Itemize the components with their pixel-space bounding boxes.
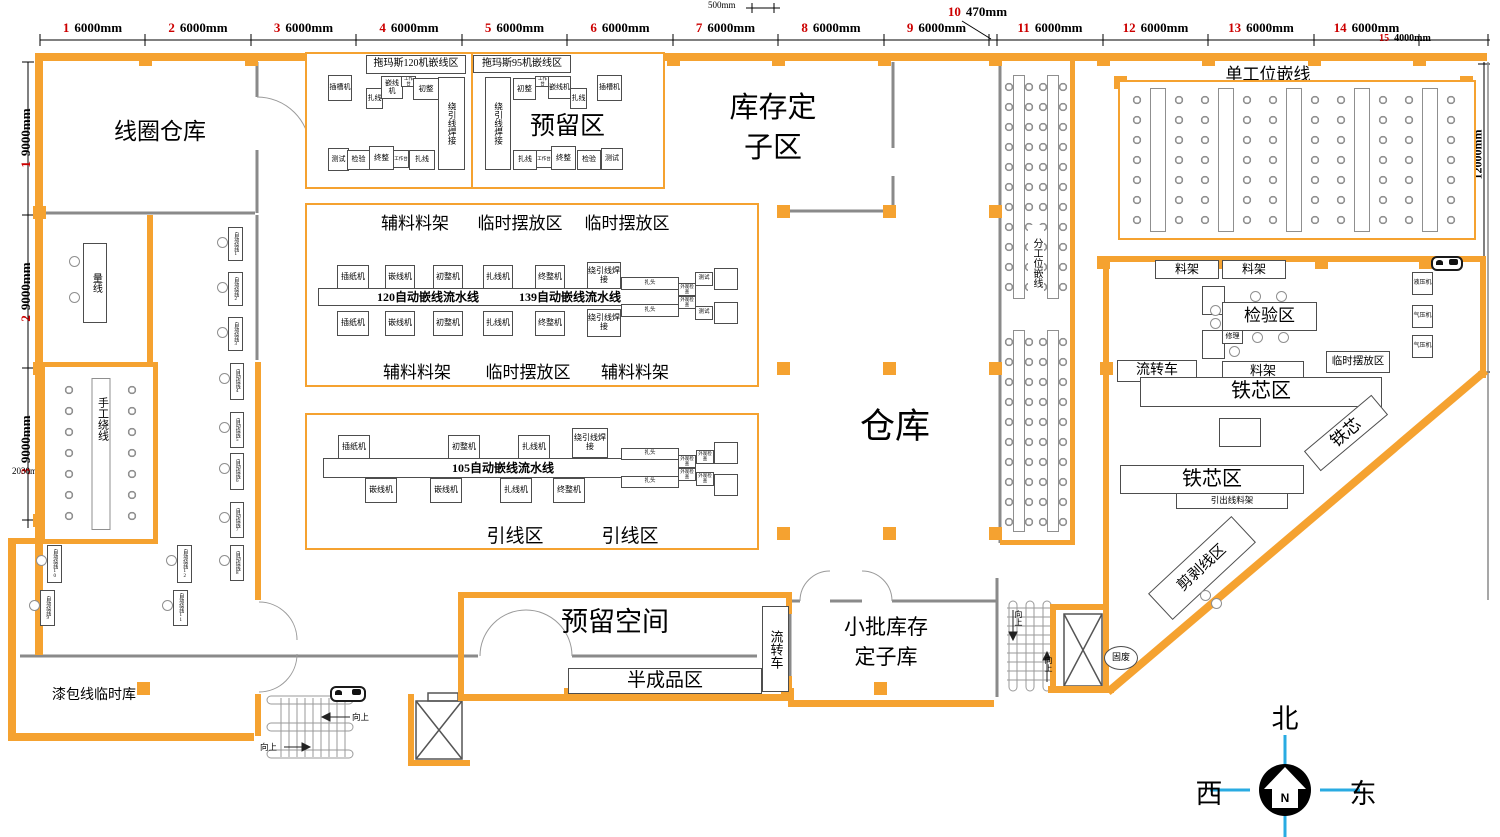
- single-station-desks: [1336, 88, 1388, 230]
- machine-visual-check: 外观检查: [678, 468, 696, 481]
- zone-stock-stator: 库存定子区: [723, 88, 823, 168]
- pillar: [1100, 362, 1113, 375]
- wall-elevator-left-a: [408, 694, 414, 766]
- machine: 插纸机: [338, 435, 370, 460]
- auto-winder-9: 自动绕线9: [40, 590, 55, 626]
- pillar: [883, 362, 896, 375]
- auto-winder-7: 自动绕线7: [230, 502, 244, 538]
- machine: 扎线机: [518, 435, 550, 460]
- auto-winder-12: 自动绕线12: [177, 545, 192, 583]
- ruler-bay-10: 10470mm: [930, 4, 1025, 20]
- machine-box: [714, 268, 738, 290]
- compass-east: 东: [1345, 772, 1381, 811]
- pillar: [777, 362, 790, 375]
- desk-table: [1422, 88, 1438, 232]
- stairs-left-arrows: [284, 713, 350, 751]
- chair-dot: [1252, 332, 1263, 343]
- machine-slot: 插槽机: [597, 75, 622, 101]
- machine: 嵌线机: [385, 265, 415, 290]
- pillar: [989, 527, 1002, 540]
- tuomasi120-title: 拖玛斯120机嵌线区: [366, 55, 466, 74]
- cart-icon: [330, 686, 366, 702]
- stairs-up-label: 向上: [352, 711, 369, 723]
- chair-dot: [1250, 291, 1261, 302]
- iron-core-area: 铁芯区: [1120, 465, 1304, 494]
- belt-label-120: 120自动嵌线流水线: [377, 291, 479, 304]
- chair-dot: [1229, 346, 1240, 357]
- wall-elev2-left: [1050, 604, 1056, 692]
- manual-winding-desks: 手工绕线: [64, 378, 138, 528]
- outgoing-wire-rack: 引出线料架: [1176, 493, 1288, 509]
- compass-n-letter: N: [1279, 791, 1291, 805]
- machine-box: [714, 474, 738, 496]
- strip-label: 引线区: [480, 521, 550, 548]
- wall-right-area-right: [1480, 256, 1486, 378]
- wall-right-area-left: [1103, 256, 1109, 690]
- auto-winder-11: 自动绕线11: [173, 590, 188, 626]
- machine-insert: 嵌线机: [381, 76, 403, 99]
- repair-box: 修理: [1222, 330, 1243, 344]
- machine: 终整机: [553, 478, 585, 503]
- pillar: [878, 53, 891, 66]
- single-station-desks: [1132, 88, 1184, 230]
- wall-reserved-top: [458, 592, 792, 598]
- auto-winder-4: 自动绕线4: [230, 363, 244, 400]
- machine-test: 测试: [328, 148, 349, 171]
- strip-label: 临时摆放区: [577, 209, 677, 234]
- machine-weld: 绕引线焊接: [587, 262, 621, 290]
- auto-winder-8: 自动绕线8: [230, 545, 244, 581]
- desk-table: [1150, 88, 1166, 232]
- desk-table: [1047, 330, 1059, 532]
- pillar: [989, 53, 1002, 66]
- chair-dot: [219, 512, 230, 523]
- machine: 插纸机: [337, 311, 369, 336]
- chair-dot: [69, 292, 80, 303]
- conveyor-belt: 105自动嵌线流水线: [323, 458, 683, 478]
- compass-north: 北: [1267, 697, 1303, 736]
- zone-reserved-area: 预留区: [525, 106, 610, 142]
- machine: 初整机: [448, 435, 480, 460]
- ruler-bay-15: 154000mm: [1360, 33, 1450, 44]
- machine-insert: 嵌线机: [548, 76, 571, 99]
- desk-table: 手工绕线: [92, 378, 111, 530]
- pillar: [245, 53, 258, 66]
- desk-table: [1218, 88, 1234, 232]
- factory-floor-plan: 16000mm 26000mm 36000mm 46000mm 56000mm …: [0, 0, 1500, 837]
- machine: 嵌线机: [365, 478, 397, 503]
- machine-tie: 扎线: [513, 150, 537, 170]
- machine-clamp: 扎头: [621, 304, 679, 317]
- pillar: [1315, 256, 1328, 269]
- chair-dot: [217, 282, 228, 293]
- wall-smallbatch-bottom: [788, 700, 994, 707]
- pillar: [874, 682, 887, 695]
- zone-enamel-temp: 漆包线临时库: [46, 684, 142, 704]
- elevator-left: [416, 693, 462, 759]
- chair-dot: [166, 555, 177, 566]
- rack: 料架: [1155, 260, 1219, 279]
- ruler-bay-5: 56000mm: [462, 20, 567, 36]
- machine-tie: 扎线: [409, 150, 435, 170]
- strip-label: 引线区: [595, 521, 665, 548]
- auto-winder-1: 自动绕线1: [228, 227, 243, 261]
- ruler-left-2: 29000mm: [18, 252, 34, 332]
- ruler-bay-12: 126000mm: [1103, 20, 1208, 36]
- measure-wire-desk: 量线: [83, 243, 107, 323]
- desk-table: [1047, 75, 1059, 299]
- ruler-left-1: 19000mm: [18, 98, 34, 178]
- chair-dot: [1210, 318, 1221, 329]
- machine: 初整机: [433, 311, 463, 336]
- chair-dot: [217, 237, 228, 248]
- chair-dot: [219, 373, 230, 384]
- wall-reserved-bottom: [458, 694, 792, 701]
- strip-label: 辅料料架: [590, 358, 680, 383]
- ruler-bay-8: 86000mm: [778, 20, 884, 36]
- machine-weld: 绕引线焊接: [572, 428, 608, 458]
- chair-dot: [217, 327, 228, 338]
- single-station-desks: [1404, 88, 1456, 230]
- inspection-area: 检验区: [1222, 302, 1317, 331]
- wall-left-step: [8, 538, 41, 544]
- ruler-mini-dim: 500mm: [708, 0, 736, 10]
- semi-finished-area: 半成品区: [568, 668, 762, 694]
- machine: 嵌线机: [430, 478, 462, 503]
- chair-dot: [1211, 598, 1222, 609]
- stairs-up-label: 向上: [260, 741, 277, 753]
- desk-table: [1013, 330, 1025, 532]
- pillar: [667, 53, 680, 66]
- machine-slot: 插槽机: [328, 75, 352, 101]
- stairs-left: [267, 696, 353, 758]
- split-station-desks: [1038, 330, 1068, 530]
- machine: 插纸机: [337, 265, 369, 290]
- pneumatic-press: 气压机: [1412, 335, 1433, 358]
- iron-core-area: 铁芯区: [1140, 377, 1382, 407]
- transfer-cart-vertical: 流转车: [762, 606, 789, 692]
- machine-pre: 初整: [513, 78, 536, 100]
- ruler-bay-7: 76000mm: [673, 20, 778, 36]
- pillar: [139, 53, 152, 66]
- machine: 初整机: [433, 265, 463, 290]
- machine-check: 检验: [347, 150, 370, 170]
- pillar: [777, 205, 790, 218]
- machine-test: 测试: [695, 272, 713, 286]
- temp-storage-area: 临时摆放区: [1326, 351, 1390, 373]
- wall-elevator-left-b: [408, 760, 470, 766]
- wall-elev2-bottom: [1048, 686, 1114, 693]
- pillar: [989, 205, 1002, 218]
- machine-visual-check: 外观检查: [696, 450, 714, 464]
- chair-dot: [219, 422, 230, 433]
- machine-clamp: 扎头: [621, 448, 679, 460]
- zone-small-batch: 小批库存定子库: [838, 612, 934, 672]
- chair-dot: [162, 600, 173, 611]
- ruler-bay-6: 66000mm: [567, 20, 673, 36]
- chair-dot: [219, 463, 230, 474]
- single-station-desks: [1200, 88, 1252, 230]
- machine-bench: 工作台: [393, 150, 409, 168]
- desk-table: [1354, 88, 1370, 232]
- ruler-bay-13: 136000mm: [1208, 20, 1314, 36]
- wall-corridor-lower: [255, 362, 261, 600]
- manual-winding-label: 手工绕线: [95, 397, 111, 441]
- strip-label: 临时摆放区: [470, 209, 570, 234]
- measure-wire-label: 量线: [90, 273, 101, 293]
- wall-measure-room-right: [147, 215, 153, 365]
- chair-dot: [1200, 590, 1211, 601]
- machine-clamp: 扎头: [621, 277, 679, 290]
- pillar: [883, 527, 896, 540]
- wall-reserved-left: [458, 592, 464, 700]
- chair-dot: [36, 555, 47, 566]
- elevator-right: [1064, 614, 1102, 686]
- ruler-bay-1: 16000mm: [40, 20, 145, 36]
- wall-elev2-top: [1050, 604, 1106, 610]
- machine: 终整机: [535, 265, 565, 290]
- machine-weld: 绕引线焊接: [587, 309, 621, 337]
- ruler-bay-3: 36000mm: [251, 20, 356, 36]
- pillar: [1097, 53, 1110, 66]
- zone-split-station: 分工位嵌线: [1028, 225, 1044, 301]
- zone-coil-warehouse: 线圈仓库: [85, 112, 235, 146]
- ruler-bay-2: 26000mm: [145, 20, 251, 36]
- auto-winder-10: 自动绕线10: [47, 545, 62, 583]
- zone-warehouse: 仓库: [840, 398, 950, 449]
- auto-winder-6: 自动绕线6: [230, 453, 244, 490]
- desk-table: [1286, 88, 1302, 232]
- compass-icon: [1210, 735, 1360, 837]
- zone-reserved-space: 预留空间: [545, 600, 685, 639]
- pillar: [772, 53, 785, 66]
- machine: 嵌线机: [385, 311, 415, 336]
- stairs-up-label: 向上: [1013, 610, 1024, 626]
- machine-weld: 绕引线焊接: [485, 77, 511, 170]
- machine-visual-check: 外观检查: [678, 283, 696, 296]
- machine-test: 测试: [695, 306, 713, 320]
- machine-test: 测试: [601, 148, 623, 170]
- ruler-bay-9: 96000mm: [884, 20, 989, 36]
- strip-label: 辅料料架: [372, 358, 462, 383]
- ruler-bay-11: 116000mm: [997, 20, 1103, 36]
- pillar: [883, 205, 896, 218]
- pillar: [1413, 53, 1426, 66]
- solid-waste-label: 固废: [1104, 646, 1138, 670]
- chair-dot: [1276, 291, 1287, 302]
- split-station-desks: [1004, 330, 1034, 530]
- auto-winder-2: 自动绕线2: [228, 272, 243, 306]
- stairs-up-label: 向上: [1043, 656, 1054, 672]
- chair-dot: [29, 600, 40, 611]
- transfer-cart-label: 流转车: [768, 630, 782, 669]
- chair-dot: [69, 256, 80, 267]
- ruler-bay-4: 46000mm: [356, 20, 462, 36]
- rack: 料架: [1222, 260, 1286, 279]
- machine-clamp: 扎头: [621, 476, 679, 488]
- wall-bottom-left: [8, 733, 254, 741]
- pillar: [989, 362, 1002, 375]
- machine: 终整机: [535, 311, 565, 336]
- wall-split-strip-bottom: [1000, 540, 1075, 545]
- machine: 扎线机: [483, 311, 513, 336]
- machine-final: 终整: [551, 146, 576, 170]
- single-station-desks: [1268, 88, 1320, 230]
- machine-visual-check: 外观检查: [696, 472, 714, 486]
- wall-split-strip-right: [1070, 60, 1075, 543]
- machine-bench: 工作台: [536, 150, 552, 168]
- machine-box: [714, 302, 738, 324]
- auto-winder-3: 自动绕线3: [228, 317, 243, 351]
- machine-final: 终整: [369, 146, 394, 170]
- pillar: [777, 527, 790, 540]
- strip-label: 临时摆放区: [478, 358, 578, 383]
- wall-corridor-bottom: [255, 694, 261, 736]
- machine-box: [714, 442, 738, 464]
- machine-weld: 绕引线焊接: [438, 77, 465, 170]
- strip-label: 辅料料架: [370, 209, 460, 234]
- machine: 扎线机: [500, 478, 532, 503]
- pillar: [33, 206, 46, 219]
- desk-table: [1013, 75, 1025, 299]
- pneumatic-press: 气压机: [1412, 305, 1433, 328]
- machine-visual-check: 外观检查: [678, 455, 696, 468]
- compass-west: 西: [1191, 772, 1227, 811]
- tuomasi95-title: 拖玛斯95机嵌线区: [473, 55, 571, 73]
- chair-dot: [1210, 305, 1221, 316]
- wall-left-lower: [8, 538, 16, 741]
- belt-label-139: 139自动嵌线流水线: [519, 291, 621, 304]
- machine-pre: 初整: [413, 78, 439, 100]
- empty-box: [1219, 418, 1261, 447]
- cart-icon: [1431, 256, 1463, 271]
- machine-visual-check: 外观检查: [678, 296, 696, 309]
- auto-winder-5: 自动绕线5: [230, 412, 244, 448]
- pillar: [1097, 256, 1110, 269]
- machine-check: 检验: [577, 150, 601, 170]
- chair-dot: [219, 555, 230, 566]
- machine: 扎线机: [483, 265, 513, 290]
- chair-dot: [1278, 332, 1289, 343]
- hydraulic-press: 液压机: [1412, 272, 1433, 295]
